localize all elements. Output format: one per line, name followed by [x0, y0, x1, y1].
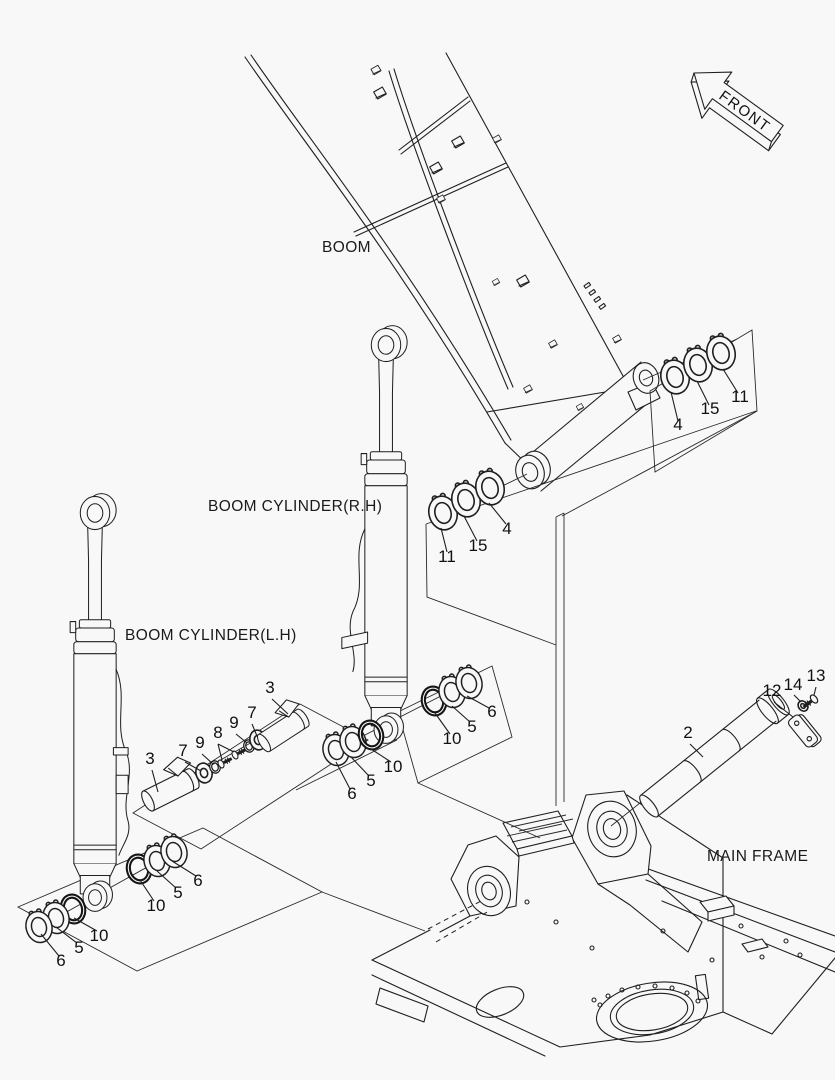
boom-foot-right-rings [657, 331, 739, 397]
callout-10-rh-left: 10 [384, 757, 403, 776]
part-number-callouts: 4 15 11 11 15 4 10 5 6 10 5 6 10 5 6 10 … [56, 387, 825, 970]
callout-10-rh-right: 10 [443, 729, 462, 748]
callout-3-lower: 3 [145, 749, 154, 768]
callout-5-lh-right: 5 [173, 883, 182, 902]
callout-5-rh-left: 5 [366, 771, 375, 790]
boom-cylinder-rh [342, 326, 407, 744]
front-direction-arrow: FRONT [675, 54, 793, 161]
callout-5-lh-left: 5 [74, 938, 83, 957]
lh-cylinder-foot-right-rings [125, 832, 190, 884]
hydraulic-pipe [350, 529, 365, 672]
pipe-clamp [113, 748, 128, 755]
pipe-bracket [342, 632, 368, 649]
callout-4-center: 4 [502, 519, 511, 538]
callout-6-lh-right: 6 [193, 871, 202, 890]
boom-label: BOOM [322, 239, 371, 256]
dashed-guide-2 [436, 911, 489, 942]
callout-11-right: 11 [731, 387, 749, 406]
rh-cylinder-foot-right-rings [420, 663, 485, 716]
boom-cylinder-rh-label: BOOM CYLINDER(R.H) [208, 498, 382, 515]
boom-cylinder-lh [70, 494, 129, 912]
boom-foot-pin-lock [787, 694, 823, 751]
parts-diagram-canvas: 4 15 11 11 15 4 10 5 6 10 5 6 10 5 6 10 … [0, 0, 835, 1080]
callout-13: 13 [807, 666, 826, 685]
step-grate [503, 811, 574, 856]
callout-15-right: 15 [701, 399, 720, 418]
callout-10-lh-left: 10 [90, 926, 109, 945]
callout-7-right: 7 [247, 703, 256, 722]
boom-foot-pin [635, 686, 793, 822]
boom-cylinder-lh-label: BOOM CYLINDER(L.H) [125, 627, 297, 644]
main-frame-label: MAIN FRAME [707, 848, 808, 865]
swing-bearing [592, 975, 712, 1050]
callout-7-left: 7 [178, 741, 187, 760]
callout-6-rh-left: 6 [347, 784, 356, 803]
callout-15-center: 15 [469, 536, 488, 555]
callout-10-lh-right: 10 [147, 896, 166, 915]
boom [245, 53, 663, 492]
frame-brackets [472, 896, 802, 1023]
callout-6-lh-left: 6 [56, 951, 65, 970]
callout-4-right: 4 [673, 415, 682, 434]
callout-12: 12 [763, 681, 782, 700]
main-frame [372, 791, 835, 1056]
hydraulic-pipe [116, 669, 129, 855]
left-boom-tower [440, 836, 519, 932]
callout-3-upper: 3 [265, 678, 274, 697]
callout-14: 14 [784, 675, 803, 694]
lock-plate-12 [787, 711, 823, 750]
callout-6-rh-right: 6 [487, 702, 496, 721]
callout-8: 8 [213, 723, 222, 742]
callout-11-center: 11 [438, 547, 456, 566]
callout-2: 2 [683, 723, 692, 742]
callout-9-left: 9 [195, 733, 204, 752]
callout-5-rh-right: 5 [467, 717, 476, 736]
callout-9-right: 9 [229, 713, 238, 732]
cylinder-pin-lower [132, 753, 202, 813]
right-boom-tower [572, 791, 702, 952]
boom-foot-left-rings [425, 466, 508, 533]
